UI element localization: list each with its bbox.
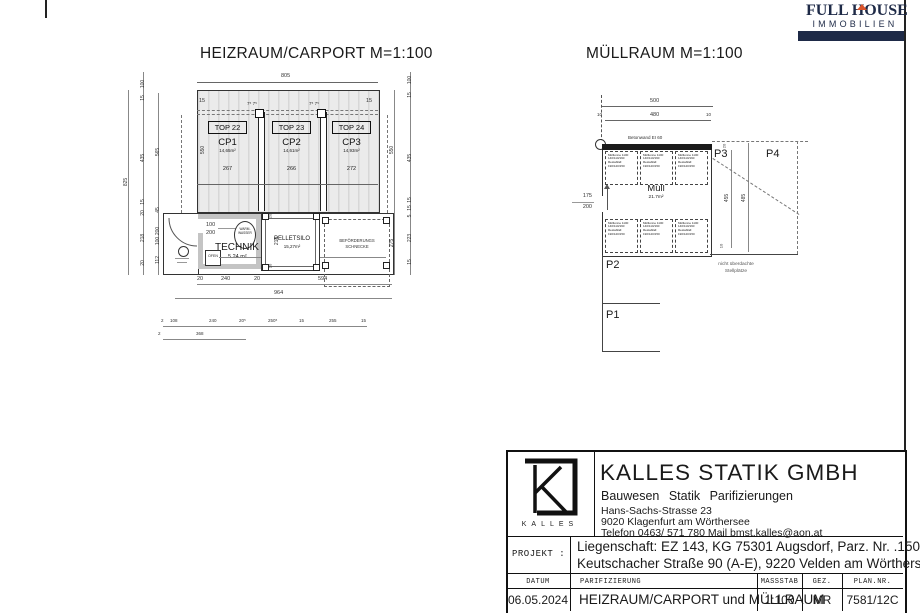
header-datum: DATUM	[506, 578, 570, 586]
carport-unit-2: TOP 23 CP2 14,61m² 266	[263, 90, 320, 211]
dim-chain-line	[143, 72, 144, 275]
dim-275: 275	[389, 239, 395, 247]
door-dim-100: 100	[206, 222, 215, 228]
dim-455: 455	[724, 194, 730, 202]
carport-area: 14,93m²	[325, 148, 378, 153]
ramp-diagonal-dashed	[712, 158, 799, 215]
pelletsilo-area: 15,27m²	[268, 244, 316, 249]
dim: 20	[254, 276, 260, 282]
company-contact: Telefon 0463/ 571 780 Mail bmst.kalles@a…	[601, 527, 822, 539]
tb-divider	[570, 537, 571, 611]
dim-368: 368	[196, 331, 204, 336]
projekt-line1: Liegenschaft: EZ 143, KG 75301 Augsdorf,…	[577, 539, 920, 554]
axis-dashed	[601, 95, 602, 142]
logo-bar	[798, 31, 904, 41]
dim-line-805	[197, 82, 378, 83]
door-dim-line	[572, 202, 594, 203]
dim: 255	[329, 318, 337, 323]
parking-p4: P4	[766, 148, 779, 160]
dim: 108	[170, 318, 178, 323]
dim: 20	[140, 260, 146, 266]
technik-label: TECHNIK	[215, 242, 259, 253]
dim-line-500	[602, 106, 713, 107]
dim: 15	[361, 318, 366, 323]
dim: 435	[140, 154, 146, 162]
dim-10: 10	[719, 244, 724, 248]
carport-width: 267	[197, 166, 258, 172]
dim: 100	[407, 76, 413, 84]
stall-right-dashed	[797, 141, 798, 254]
dim: 240	[209, 318, 217, 323]
waste-bin-label: Mülltonne 1100 140/110/190 Restabfall 19…	[676, 220, 707, 237]
post	[313, 264, 320, 271]
small-note-line	[175, 258, 189, 259]
dim: 100	[155, 237, 161, 245]
carport-id: CP1	[197, 137, 258, 148]
silo-wall-dim: 20	[268, 264, 273, 268]
logo-wordmark: FULL HOUSE	[806, 2, 904, 20]
muell-area: 21.7m²	[640, 195, 672, 200]
top-number-box: TOP 22	[208, 121, 247, 134]
waste-bin: Mülltonne 1100 140/110/190 Restabfall 19…	[675, 151, 708, 185]
uncovered-stalls-note: nicht überdachte Stellplätze	[708, 261, 764, 275]
parking-p3: P3	[714, 148, 727, 160]
dim-485: 485	[741, 194, 747, 202]
betonwand	[602, 144, 712, 150]
dim-line-964	[175, 298, 392, 299]
schnecke-room: BEFÖRDERUNGS SCHNECKE	[324, 219, 390, 287]
house-icon	[857, 4, 867, 10]
dim: 435	[407, 154, 413, 162]
waste-bin-label: Mülltonne 1100 140/110/190 Restabfall 19…	[606, 152, 637, 169]
dim: 112	[155, 256, 161, 264]
value-plannr: 7581/12C	[842, 593, 903, 607]
waste-bin-label: Mülltonne 1100 140/110/190 Restabfall 19…	[641, 220, 672, 237]
entry-arrow	[607, 188, 608, 210]
header-gez: GEZ.	[802, 578, 842, 586]
projekt-line2: Keutschacher Straße 90 (A-E), 9220 Velde…	[577, 556, 920, 571]
waste-bin: Mülltonne 1100 140/110/190 Restabfall 19…	[605, 151, 638, 185]
value-gez: MR	[802, 593, 842, 607]
dim: 2	[161, 318, 164, 323]
dim-480: 480	[650, 112, 659, 118]
header-massstab: MASSSTAB	[757, 578, 802, 586]
waste-bin: Mülltonne 1100 140/110/190 Restabfall 19…	[640, 219, 673, 253]
parking-divider	[602, 303, 660, 304]
carport-unit-3: TOP 24 CP3 14,93m² 272	[325, 90, 378, 211]
value-massstab: 1:100	[757, 593, 802, 607]
stall-bottom-line	[710, 254, 798, 255]
tb-rule	[506, 588, 903, 589]
dim-line	[163, 326, 367, 327]
overhang-left-dashed	[181, 115, 182, 213]
waste-bin: Mülltonne 1100 140/110/190 Restabfall 19…	[605, 219, 638, 253]
dim: 20⁵	[239, 318, 246, 323]
kalles-logo-text: KALLES	[521, 521, 579, 528]
dim-550: 550	[200, 146, 206, 154]
dim: 15	[140, 95, 146, 101]
carport-id: CP2	[263, 137, 320, 148]
heizraum-plan-title: HEIZRAUM/CARPORT M=1:100	[200, 45, 433, 63]
dim-805: 805	[281, 73, 290, 79]
boundary-dashdot	[712, 141, 808, 142]
dim-line	[163, 339, 246, 340]
waste-bin-label: Mülltonne 1100 140/110/190 Restabfall 19…	[641, 152, 672, 169]
carport-id: CP3	[325, 137, 378, 148]
post	[383, 262, 390, 269]
plan-sheet: FULL HOUSE IMMOBILIEN HEIZRAUM/CARPORT M…	[0, 0, 920, 613]
tb-rule	[506, 573, 903, 574]
overhang-right-dashed	[387, 115, 388, 213]
door-dim-200: 200	[206, 230, 215, 236]
dim: 240	[221, 276, 230, 282]
parking-divider	[602, 351, 660, 352]
carport-width: 266	[263, 166, 320, 172]
value-datum: 06.05.2024	[506, 593, 570, 607]
carport-unit-1: TOP 22 CP1 14,65m² 267	[197, 90, 258, 211]
dim-chain-line	[158, 93, 159, 275]
dim-chain-line	[410, 72, 411, 275]
muellraum-plan-title: MÜLLRAUM M=1:100	[586, 45, 743, 63]
dim: 200	[155, 227, 161, 235]
header-plannr: PLAN.NR.	[842, 578, 903, 586]
dim-825: 825	[123, 178, 129, 186]
dim: 15	[140, 199, 146, 205]
dim-line-480	[605, 120, 711, 121]
carport-width: 272	[325, 166, 378, 172]
projekt-label: PROJEKT :	[512, 549, 565, 559]
carport-area: 14,61m²	[263, 148, 320, 153]
company-name: KALLES STATIK GMBH	[600, 460, 858, 486]
dim: 15	[407, 197, 413, 203]
ofen-box: OFEN	[205, 250, 221, 266]
dim: 2	[158, 331, 161, 336]
carport-area: 14,65m²	[197, 148, 258, 153]
door-swing-arc	[168, 216, 200, 248]
dim: 15	[299, 318, 304, 323]
dim: 15	[407, 259, 413, 265]
small-note-line	[177, 262, 187, 263]
dim-line	[748, 143, 749, 252]
waste-bin-label: Mülltonne 1100 140/110/190 Restabfall 19…	[606, 220, 637, 237]
dim: 250⁵	[268, 318, 277, 323]
drain-circle	[178, 246, 189, 257]
dim: 565	[155, 148, 161, 156]
dim-500: 500	[650, 98, 659, 104]
post	[322, 262, 329, 269]
post	[313, 213, 320, 220]
dim-line	[731, 150, 732, 248]
dim-550-right: 550	[389, 146, 395, 154]
unit-dim-line	[197, 184, 378, 185]
dim: 218	[140, 234, 146, 242]
waste-bin: Mülltonne 1100 140/110/190 Restabfall 19…	[675, 219, 708, 253]
technik-door-opening	[197, 219, 203, 233]
dim: 594	[318, 276, 327, 282]
dim-964: 964	[274, 290, 283, 296]
dim: 15	[407, 205, 413, 211]
dim-line	[197, 284, 392, 285]
header-parifizierung: PARIFIZIERUNG	[580, 578, 641, 586]
door-dim-200: 200	[574, 204, 592, 210]
post	[322, 217, 329, 224]
tb-divider	[594, 450, 595, 537]
dim: 15	[407, 92, 413, 98]
pelletsilo-label: PELLETSILO	[268, 236, 316, 242]
dim: 20	[140, 210, 146, 216]
betonwand-label: Betonwand EI 60	[628, 135, 662, 140]
silo-wall-dim: 20	[268, 214, 273, 218]
dim-20: 20	[722, 144, 727, 148]
dim: 45	[155, 207, 161, 213]
parking-p1: P1	[606, 309, 619, 321]
dim: 223	[407, 234, 413, 242]
dim-chain-line	[394, 90, 395, 275]
dim: 20	[197, 276, 203, 282]
logo-subtitle: IMMOBILIEN	[806, 19, 904, 29]
dim: 5	[407, 215, 413, 218]
fold-mark	[45, 0, 47, 18]
company-services: Bauwesen Statik Parifizierungen	[601, 489, 793, 503]
dim-10: 10	[706, 112, 711, 117]
pelletsilo-room	[265, 218, 316, 267]
muell-door-opening	[601, 196, 604, 212]
waste-bin: Mülltonne 1100 140/110/190 Restabfall 19…	[640, 151, 673, 185]
dim: 100	[140, 80, 146, 88]
kalles-logo-icon	[519, 457, 579, 517]
top-number-box: TOP 24	[332, 121, 371, 134]
parking-p2: P2	[606, 259, 619, 271]
waste-bin-label: Mülltonne 1100 140/110/190 Restabfall 19…	[676, 152, 707, 169]
post	[383, 217, 390, 224]
top-number-box: TOP 23	[272, 121, 311, 134]
door-dim-175: 175	[574, 193, 592, 199]
